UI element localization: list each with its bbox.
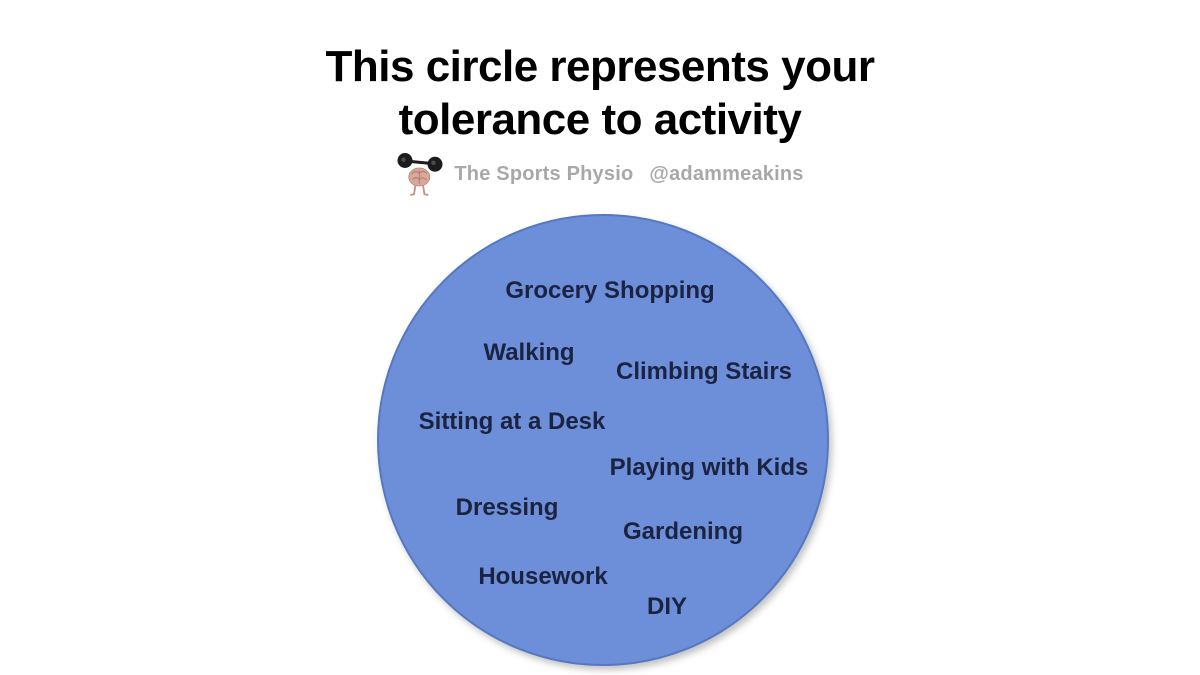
brain-lifting-barbell-icon xyxy=(396,148,444,200)
attribution: The Sports Physio @adammeakins xyxy=(0,148,1200,200)
attribution-handle: @adammeakins xyxy=(649,163,803,186)
slide: This circle represents your tolerance to… xyxy=(0,0,1200,675)
attribution-brand: The Sports Physio xyxy=(454,163,633,186)
activity-label: DIY xyxy=(647,593,687,621)
page-title-line2: tolerance to activity xyxy=(0,93,1200,146)
activity-label: Sitting at a Desk xyxy=(419,408,606,436)
activity-label: Housework xyxy=(478,563,607,591)
tolerance-circle: Grocery ShoppingWalkingClimbing StairsSi… xyxy=(377,214,829,666)
activity-label: Dressing xyxy=(456,494,559,522)
page-title-line1: This circle represents your xyxy=(0,40,1200,93)
activity-label: Grocery Shopping xyxy=(505,277,714,305)
page-title: This circle represents your tolerance to… xyxy=(0,40,1200,146)
activity-label: Climbing Stairs xyxy=(616,358,792,386)
activity-label: Playing with Kids xyxy=(610,454,809,482)
activity-label: Gardening xyxy=(623,518,743,546)
activity-label: Walking xyxy=(483,339,574,367)
